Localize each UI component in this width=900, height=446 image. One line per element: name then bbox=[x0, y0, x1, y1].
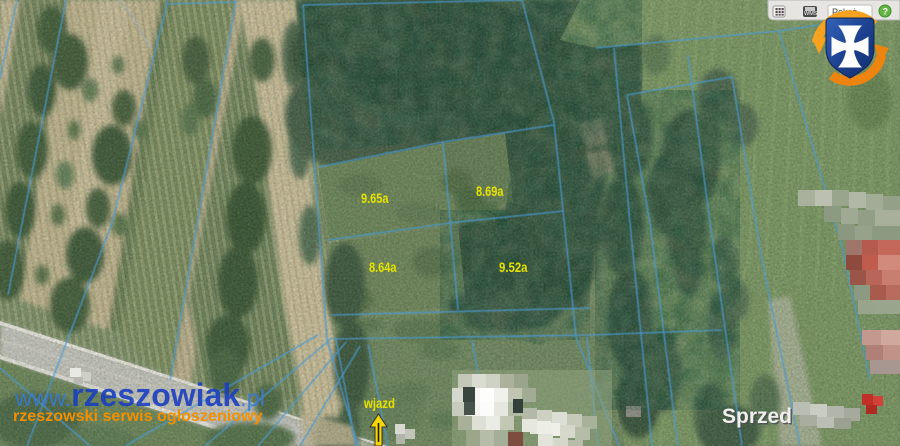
svg-text:rzeszowski serwis ogłoszeniowy: rzeszowski serwis ogłoszeniowy bbox=[13, 407, 263, 425]
svg-text:WMS: WMS bbox=[804, 11, 818, 17]
svg-text:9.65a: 9.65a bbox=[361, 190, 389, 206]
svg-text:Sprzed: Sprzed bbox=[722, 405, 792, 428]
svg-text:?: ? bbox=[883, 7, 889, 17]
svg-text:wjazd: wjazd bbox=[363, 395, 395, 411]
svg-text:8.69a: 8.69a bbox=[476, 183, 504, 199]
svg-text:9.52a: 9.52a bbox=[499, 259, 528, 275]
svg-text:8.64a: 8.64a bbox=[369, 259, 397, 275]
